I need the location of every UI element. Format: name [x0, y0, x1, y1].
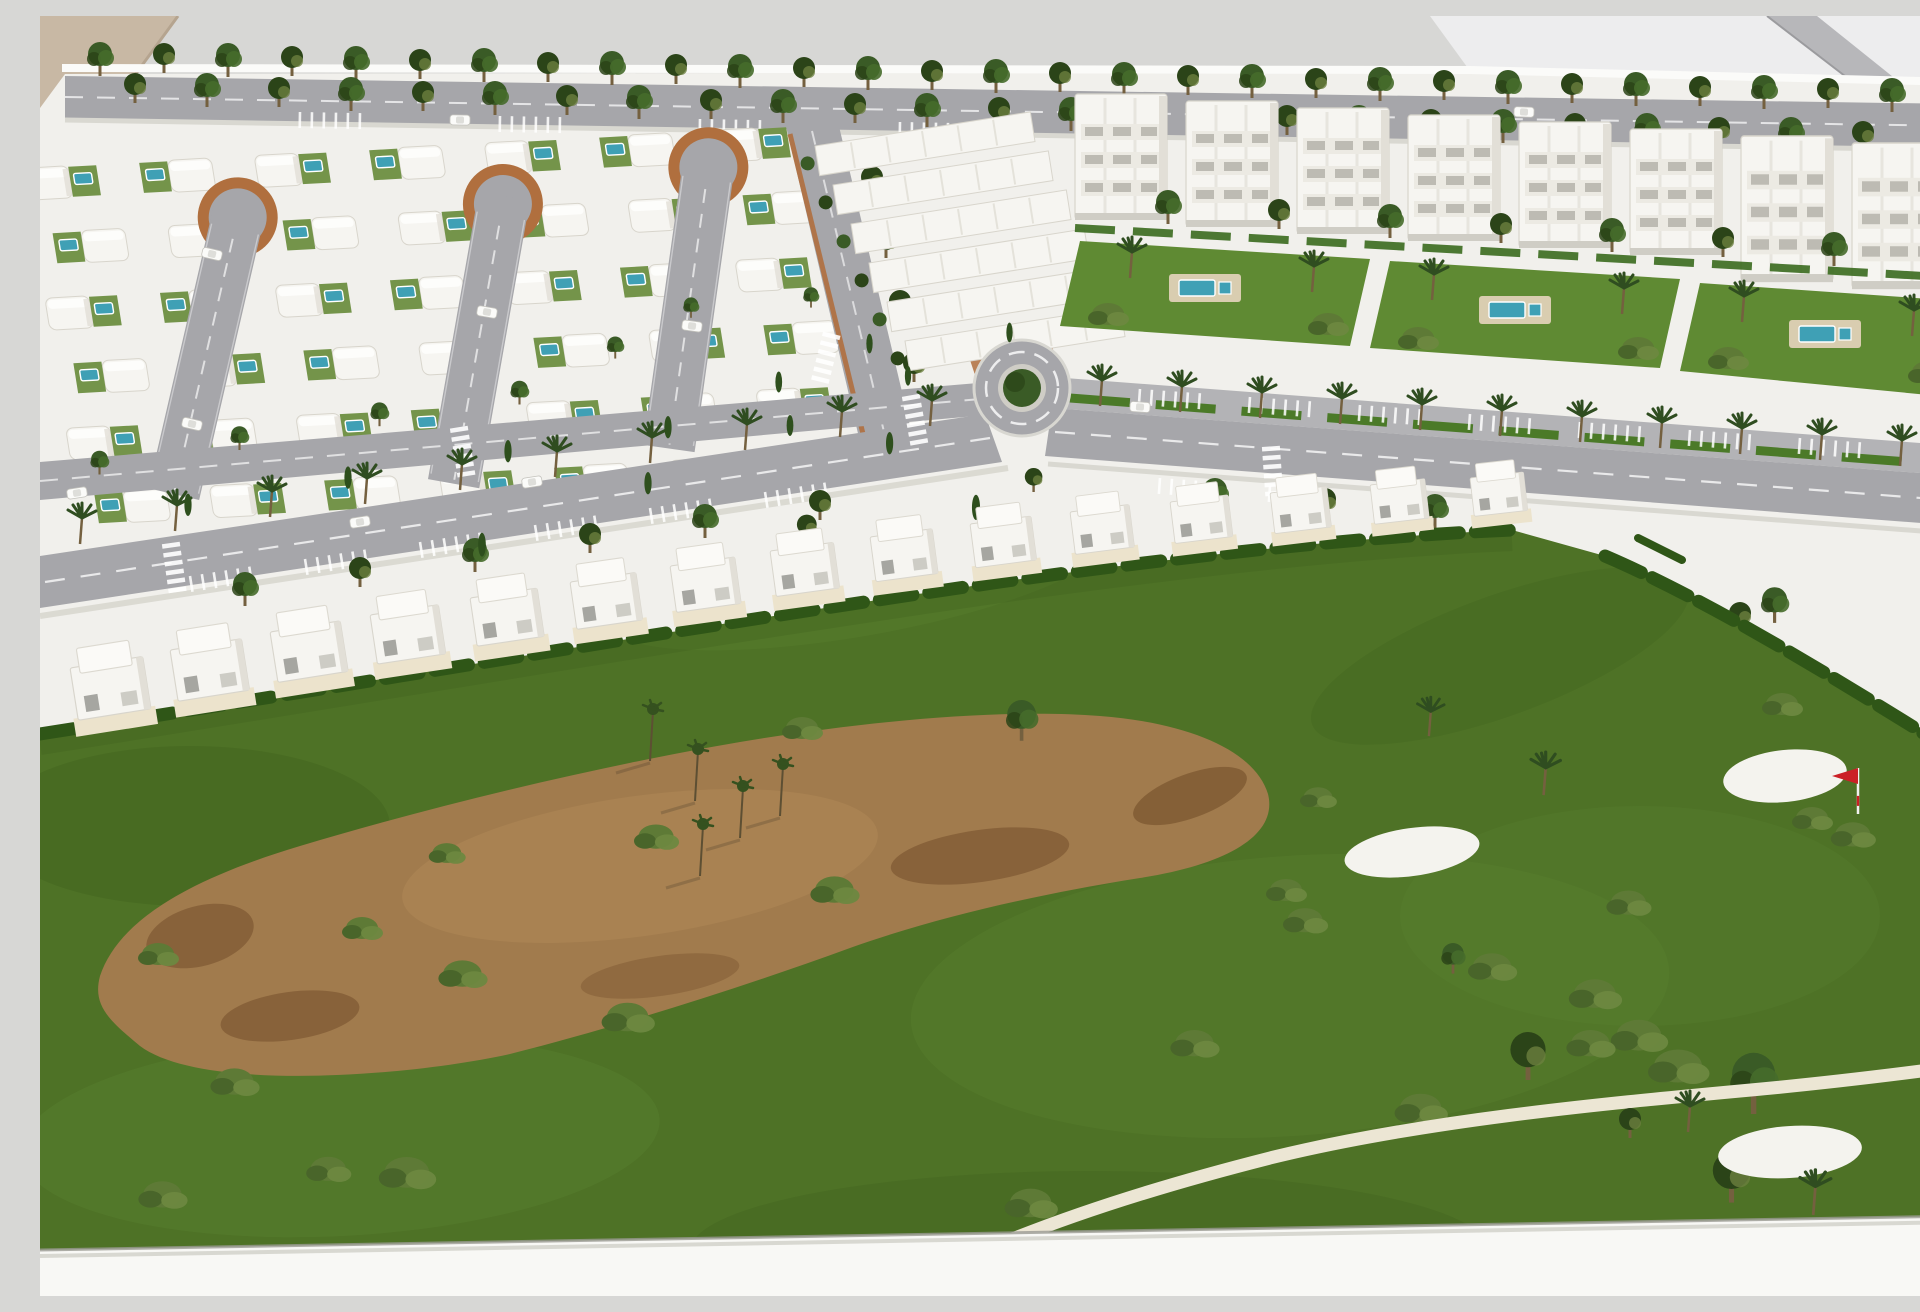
roundabout-bush-shade: [1005, 372, 1025, 392]
model-photo: [40, 16, 1920, 1296]
flag-pole-band: [1857, 796, 1859, 806]
roundabout: [974, 340, 1070, 436]
